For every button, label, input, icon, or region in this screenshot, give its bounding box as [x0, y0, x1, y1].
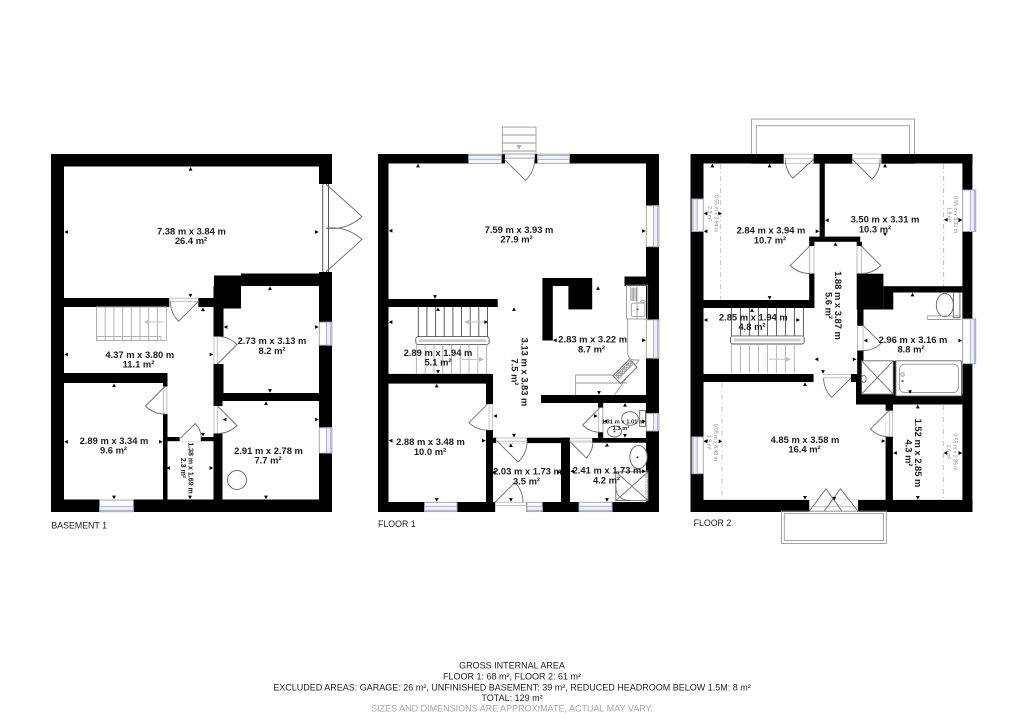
svg-text:4.8 m²: 4.8 m²	[738, 321, 765, 332]
svg-text:4.3 m²: 4.3 m²	[903, 439, 914, 466]
svg-text:27.9 m²: 27.9 m²	[500, 234, 532, 245]
svg-text:SIZES AND DIMENSIONS ARE APPRO: SIZES AND DIMENSIONS ARE APPROXIMATE, AC…	[371, 704, 653, 714]
svg-text:1.31 m x 1.01 m: 1.31 m x 1.01 m	[602, 419, 645, 425]
svg-text:26.4 m²: 26.4 m²	[175, 235, 207, 246]
svg-text:0.55 m x 3.49 m: 0.55 m x 3.49 m	[712, 424, 718, 461]
svg-text:0.94 m x 0.81 m: 0.94 m x 0.81 m	[644, 470, 649, 501]
svg-text:5.6 m²: 5.6 m²	[824, 292, 835, 319]
svg-text:16.4 m²: 16.4 m²	[788, 444, 820, 455]
svg-text:3.5 m²: 3.5 m²	[513, 475, 540, 486]
svg-text:10.3 m²: 10.3 m²	[859, 223, 891, 234]
svg-text:GROSS INTERNAL AREA: GROSS INTERNAL AREA	[459, 661, 565, 671]
svg-text:0.55 m x 2.85 m: 0.55 m x 2.85 m	[952, 433, 958, 470]
svg-text:7.7 m²: 7.7 m²	[254, 455, 281, 466]
svg-text:2.3 m²: 2.3 m²	[179, 458, 186, 479]
svg-text:0.55 m x 3.31 m: 0.55 m x 3.31 m	[952, 196, 958, 233]
svg-text:7.5 m²: 7.5 m²	[510, 358, 521, 385]
svg-text:10.7 m²: 10.7 m²	[754, 234, 786, 245]
svg-text:9.6 m²: 9.6 m²	[100, 445, 127, 456]
svg-text:8.7 m²: 8.7 m²	[578, 343, 605, 354]
svg-text:1.38 m x 1.69 m: 1.38 m x 1.69 m	[187, 442, 194, 493]
svg-text:0.55 m x 3.94 m: 0.55 m x 3.94 m	[713, 195, 719, 232]
svg-text:EXCLUDED AREAS: GARAGE: 26 m²,: EXCLUDED AREAS: GARAGE: 26 m², UNFINISHE…	[273, 682, 751, 692]
svg-text:4.2 m²: 4.2 m²	[593, 474, 620, 485]
svg-text:BASEMENT 1: BASEMENT 1	[51, 521, 107, 531]
svg-text:10.0 m²: 10.0 m²	[414, 446, 446, 457]
svg-text:FLOOR 1: FLOOR 1	[378, 519, 416, 529]
svg-text:8.8 m²: 8.8 m²	[897, 344, 924, 355]
svg-text:5.1 m²: 5.1 m²	[424, 356, 451, 367]
svg-text:FLOOR 2: FLOOR 2	[694, 518, 732, 528]
svg-text:FLOOR 1: 68 m², FLOOR 2: 61 m²: FLOOR 1: 68 m², FLOOR 2: 61 m²	[443, 672, 581, 682]
svg-text:8.2 m²: 8.2 m²	[258, 345, 285, 356]
svg-text:1.3 m²: 1.3 m²	[613, 425, 630, 432]
svg-text:11.1 m²: 11.1 m²	[123, 359, 155, 370]
svg-text:TOTAL: 129 m²: TOTAL: 129 m²	[481, 693, 542, 703]
